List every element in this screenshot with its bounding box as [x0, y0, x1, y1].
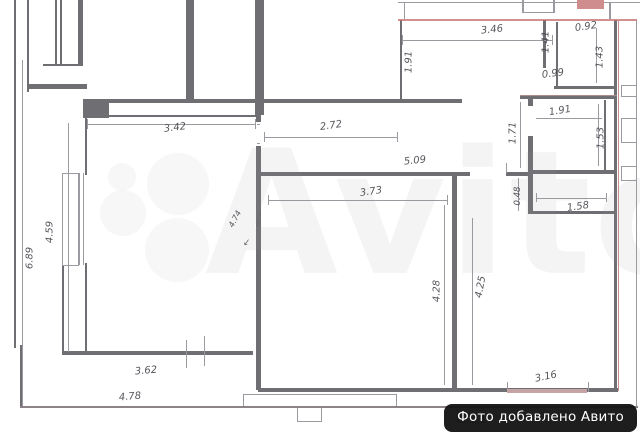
dimension-label: 6.89 — [25, 247, 36, 269]
dimension-label: 1.71 — [508, 122, 519, 144]
dimension-label: 1.91 — [404, 51, 415, 73]
dimension-label: 5.09 — [403, 154, 426, 167]
photo-source-badge: Фото добавлено Авито — [444, 404, 637, 433]
dimension-label: 4.78 — [118, 391, 141, 404]
watermark-circle — [147, 153, 209, 215]
dimension-label: 1.53 — [596, 127, 607, 149]
watermark-circle — [108, 163, 136, 191]
floor-plan-photo: Avito 3.422.723.460.921.431.410.991.911.… — [0, 0, 640, 437]
dimension-label: 4.28 — [432, 280, 443, 302]
dimension-label: 0.48 — [513, 187, 523, 206]
dimension-label: 3.46 — [480, 23, 503, 36]
watermark-circle — [145, 218, 209, 282]
leader-arrow-icon: ↙ — [242, 237, 251, 248]
dimension-label: 4.59 — [45, 221, 56, 243]
dimension-label: 3.62 — [134, 365, 157, 378]
watermark-circle — [100, 190, 146, 236]
dimension-label: 1.41 — [541, 31, 552, 53]
dimension-label: 1.43 — [595, 46, 606, 68]
